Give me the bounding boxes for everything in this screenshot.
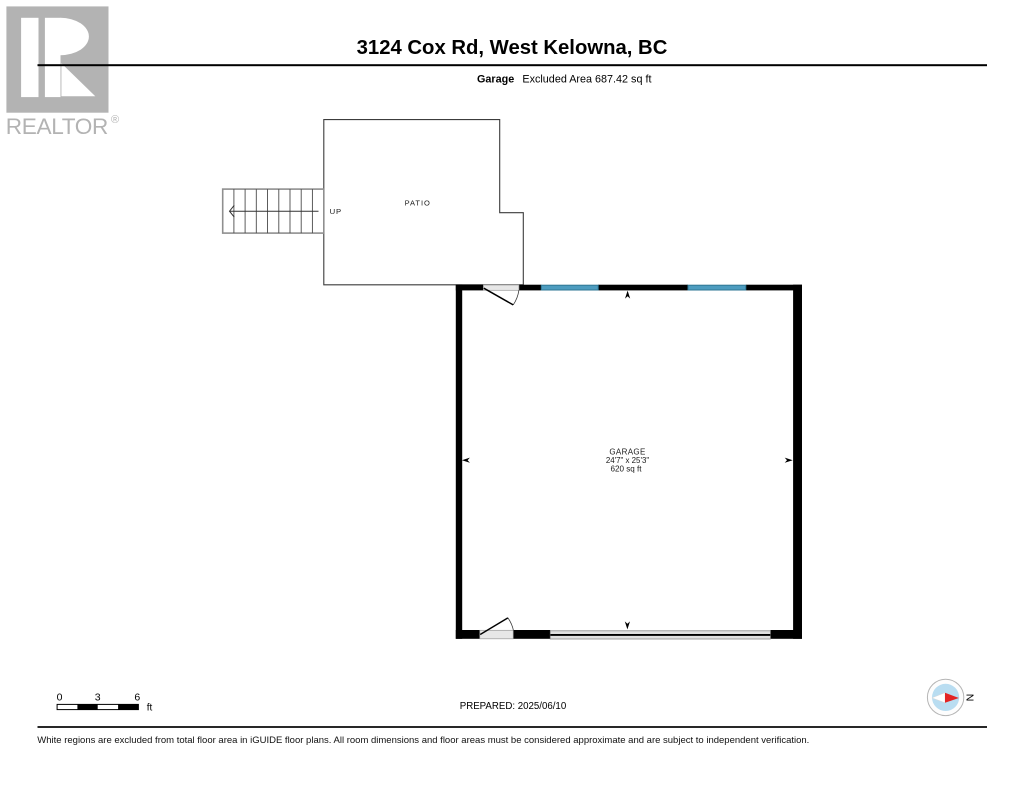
svg-text:PATIO: PATIO (405, 199, 431, 208)
svg-text:UP: UP (330, 207, 342, 216)
svg-text:GarageExcluded Area 687.42 sq: GarageExcluded Area 687.42 sq ft (477, 73, 651, 85)
svg-text:3124 Cox Rd, West Kelowna, BC: 3124 Cox Rd, West Kelowna, BC (357, 37, 668, 59)
svg-text:6: 6 (134, 692, 140, 704)
svg-text:N: N (963, 694, 975, 702)
svg-text:White regions are excluded fro: White regions are excluded from total fl… (37, 735, 809, 746)
svg-text:®: ® (111, 114, 119, 126)
svg-text:0: 0 (57, 692, 63, 704)
svg-text:3: 3 (95, 692, 101, 704)
svg-text:ft: ft (147, 702, 153, 713)
svg-text:620 sq ft: 620 sq ft (610, 464, 642, 473)
svg-text:PREPARED: 2025/06/10: PREPARED: 2025/06/10 (460, 701, 567, 712)
svg-text:REALTOR: REALTOR (6, 114, 108, 139)
